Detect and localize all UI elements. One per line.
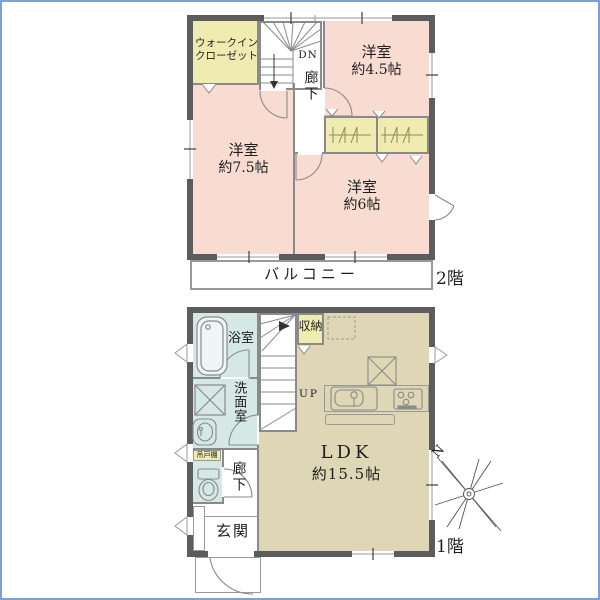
room-toilet: [193, 461, 224, 504]
closet-divider: [376, 118, 378, 152]
window: [429, 53, 435, 98]
bathroom-label: 浴室: [221, 331, 261, 347]
door-gap: [208, 551, 254, 557]
room-washroom: [193, 379, 259, 450]
ldk-label: LDK 約15.5帖: [299, 442, 394, 483]
corridor-2f-label: 廊下: [301, 70, 319, 102]
door-gap: [257, 415, 259, 445]
kitchen-counter: [324, 385, 429, 412]
door-gap: [323, 88, 325, 116]
storage-label: 収納: [297, 319, 324, 334]
door-gap: [222, 467, 224, 497]
door-gap: [298, 152, 322, 155]
floor1-label: 1階: [436, 537, 478, 558]
room-4-5-label: 洋室 約4.5帖: [324, 43, 429, 79]
corridor-1f-label: 廊下: [229, 461, 247, 493]
wall: [193, 502, 224, 504]
closet-row: [324, 116, 429, 154]
floor-plan-canvas: ウォークイン クローゼット DN 廊下 洋室 約4.5帖 洋室 約7.5帖 洋室…: [0, 0, 600, 600]
floor2-label: 2階: [436, 269, 478, 290]
wall: [193, 448, 259, 450]
balcony-label: バルコニー: [190, 265, 433, 284]
window: [217, 254, 279, 260]
room-6-label: 洋室 約6帖: [295, 178, 429, 214]
door-gap: [429, 194, 435, 220]
room-ldk: [259, 432, 297, 551]
room-ldk: [324, 313, 429, 551]
stairs-dn-label: DN: [294, 49, 322, 62]
window: [429, 347, 435, 363]
window: [187, 344, 193, 362]
staircase-1f: [259, 313, 297, 432]
shoe-cabinet: [193, 506, 205, 551]
hanging-cupboard-label: 吊戸棚: [193, 451, 221, 460]
compass-icon: [435, 457, 503, 531]
door-gap: [261, 87, 286, 91]
window: [352, 551, 394, 557]
washroom-label: 洗面室: [230, 381, 246, 423]
wall: [193, 83, 259, 85]
stairs-up-label: UP: [295, 388, 323, 401]
walk-in-closet-label: ウォークイン クローゼット: [195, 37, 257, 63]
room-7-5-label: 洋室 約7.5帖: [193, 141, 294, 177]
window: [325, 254, 387, 260]
entrance-step-line: [205, 516, 259, 517]
kitchen-island: [325, 414, 395, 425]
window: [187, 517, 193, 535]
entrance-label: 玄関: [207, 522, 259, 541]
window: [264, 15, 392, 21]
door-gap: [220, 377, 250, 379]
entrance-porch: [195, 557, 261, 593]
